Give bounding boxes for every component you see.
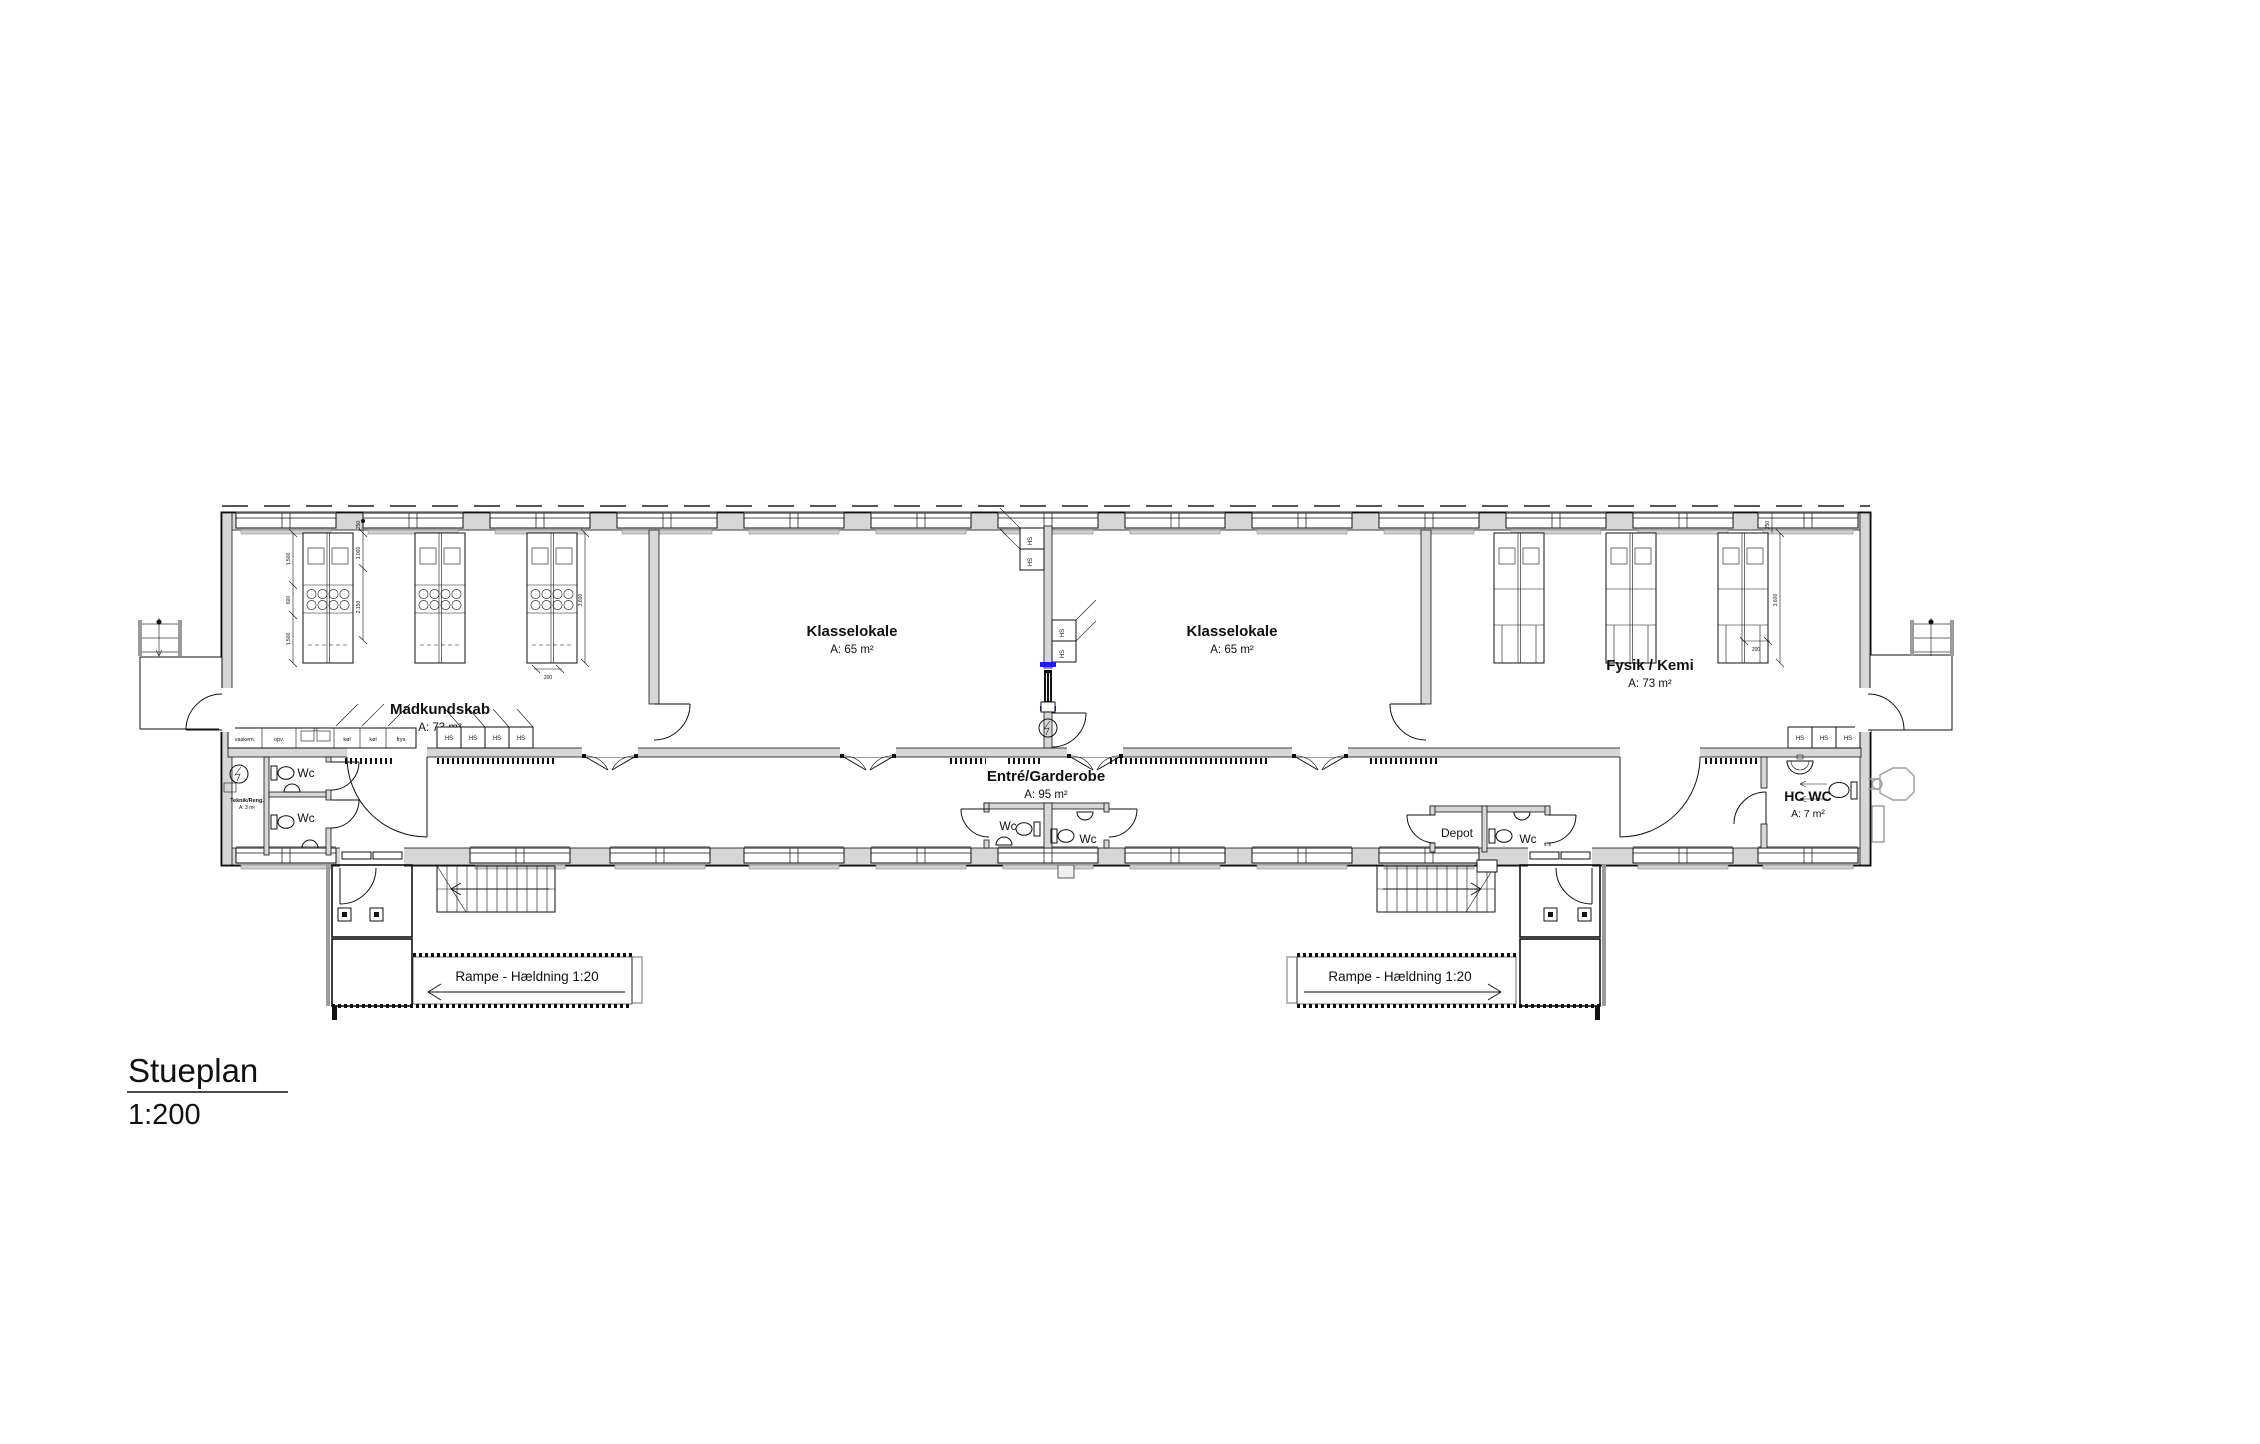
porch-railing xyxy=(138,618,182,656)
porch-landing xyxy=(1870,655,1952,730)
locker-label: HS xyxy=(469,736,477,742)
locker-label: HS xyxy=(445,736,453,742)
dim-label: 250 xyxy=(356,521,362,530)
locker-label: HS xyxy=(517,736,525,742)
lower-landing xyxy=(1520,939,1600,1006)
railing-post xyxy=(1578,908,1591,921)
wall-madkundskab-klasselokale xyxy=(649,530,659,704)
title-block: Stueplan 1:200 xyxy=(127,1052,288,1131)
dim-label: 600 xyxy=(286,596,292,605)
dim-label: 200 xyxy=(1752,647,1761,653)
downpipe xyxy=(1872,806,1884,842)
room-area: A: 7 m² xyxy=(1791,808,1825,820)
sheet-scale: 1:200 xyxy=(128,1099,201,1131)
locker-label: HS xyxy=(1796,736,1804,742)
wc-label: Wc xyxy=(297,811,314,825)
ramp-label: Rampe - Hældning 1:20 xyxy=(1328,969,1471,984)
railing-post xyxy=(338,908,351,921)
wc-label: Wc xyxy=(297,766,314,780)
west-porch xyxy=(138,618,235,732)
room-label: Fysik / Kemi xyxy=(1606,657,1694,674)
railing-post xyxy=(1544,908,1557,921)
ramp-direction-arrow xyxy=(1304,984,1501,1000)
porch-landing xyxy=(140,657,222,729)
locker-label: HS xyxy=(1028,537,1034,545)
wc-label: Wc xyxy=(1519,832,1536,846)
lower-landing xyxy=(332,939,412,1006)
room-label: Klasselokale xyxy=(1187,623,1278,640)
ramp-direction-arrow xyxy=(428,984,625,1000)
door-arc xyxy=(1556,868,1592,904)
room-label: HC WC xyxy=(1784,788,1831,804)
room-area: A: 3 m² xyxy=(239,805,255,811)
unit-label-dishwasher: opv. xyxy=(274,737,284,743)
dim-label: 200 xyxy=(544,675,553,681)
locker-label: HS xyxy=(1820,736,1828,742)
room-area: A: 95 m² xyxy=(1024,789,1068,801)
middle-partition-upper xyxy=(1044,526,1052,668)
unit-label-washer: vaskem. xyxy=(235,737,256,743)
door-closer xyxy=(1041,702,1055,712)
corridor-wall xyxy=(228,748,1861,757)
ramp-label: Rampe - Hældning 1:20 xyxy=(455,969,598,984)
west-exit: Rampe - Hældning 1:20 xyxy=(326,865,642,1020)
locker-label: HS xyxy=(493,736,501,742)
room-area: A: 73 m² xyxy=(1628,678,1672,690)
unit-label-fridge: køl xyxy=(343,737,350,743)
stair-west xyxy=(437,866,555,912)
wc-label: Wc xyxy=(1079,832,1096,846)
upper-landing xyxy=(332,865,412,937)
lab-island xyxy=(1718,533,1768,663)
kitchen-island xyxy=(527,533,577,663)
dim-label: 3.600 xyxy=(578,594,584,607)
unit-label-fridge: køl xyxy=(369,737,376,743)
dim-label: 2.150 xyxy=(356,601,362,614)
floor-plan-drawing: HS HS HS HS xyxy=(0,0,2260,1444)
railing-post xyxy=(370,908,383,921)
stair-direction-arrow xyxy=(451,883,549,895)
kitchen-island xyxy=(415,533,465,663)
entrance-mat xyxy=(1058,865,1074,878)
locker-label: HS xyxy=(1028,558,1034,566)
dim-label: 1.500 xyxy=(286,553,292,566)
room-area: A: 65 m² xyxy=(1210,644,1254,656)
room-label: Depot xyxy=(1441,826,1474,840)
room-label: Entré/Garderobe xyxy=(987,768,1105,785)
wheelchair-icon xyxy=(1868,768,1914,800)
dim-label: 3.600 xyxy=(1773,594,1779,607)
unit-label-freezer: frys xyxy=(397,737,406,743)
upper-landing xyxy=(1520,865,1600,937)
wall-klasselokale-fysik xyxy=(1421,530,1431,704)
lab-island xyxy=(1606,533,1656,663)
dim-label: 250 xyxy=(1765,521,1771,530)
kitchen-island xyxy=(303,533,353,663)
locker-label: HS xyxy=(1060,650,1066,658)
middle-door-leaf xyxy=(1044,670,1052,704)
door-jamb-accent xyxy=(1040,662,1056,667)
wc-label: Wc xyxy=(999,819,1016,833)
room-label: Teknik/Reng. xyxy=(230,798,264,804)
porch-railing xyxy=(1910,618,1954,656)
sheet-title: Stueplan xyxy=(128,1052,258,1089)
ramp-east: Rampe - Hældning 1:20 xyxy=(1287,955,1600,1006)
room-area: A: 65 m² xyxy=(830,644,874,656)
locker-group-east: HS HS HS xyxy=(1788,727,1860,748)
stair-direction-arrow xyxy=(1383,883,1481,895)
locker-label: HS xyxy=(1060,629,1066,637)
floor-plan-sheet: HS HS HS HS xyxy=(0,0,2260,1444)
lab-island xyxy=(1494,533,1544,663)
east-exit: Rampe - Hældning 1:20 xyxy=(1287,860,1606,1020)
door-arc xyxy=(340,868,376,904)
dim-label: 1.500 xyxy=(286,633,292,646)
room-label: Klasselokale xyxy=(807,623,898,640)
ramp-west: Rampe - Hældning 1:20 xyxy=(332,955,642,1006)
dim-label: 1.000 xyxy=(356,547,362,560)
locker-label: HS xyxy=(1844,736,1852,742)
fysik-kemi-room: 3.600 250 200 Fysik / Kemi A: 73 m² xyxy=(1494,513,1784,690)
